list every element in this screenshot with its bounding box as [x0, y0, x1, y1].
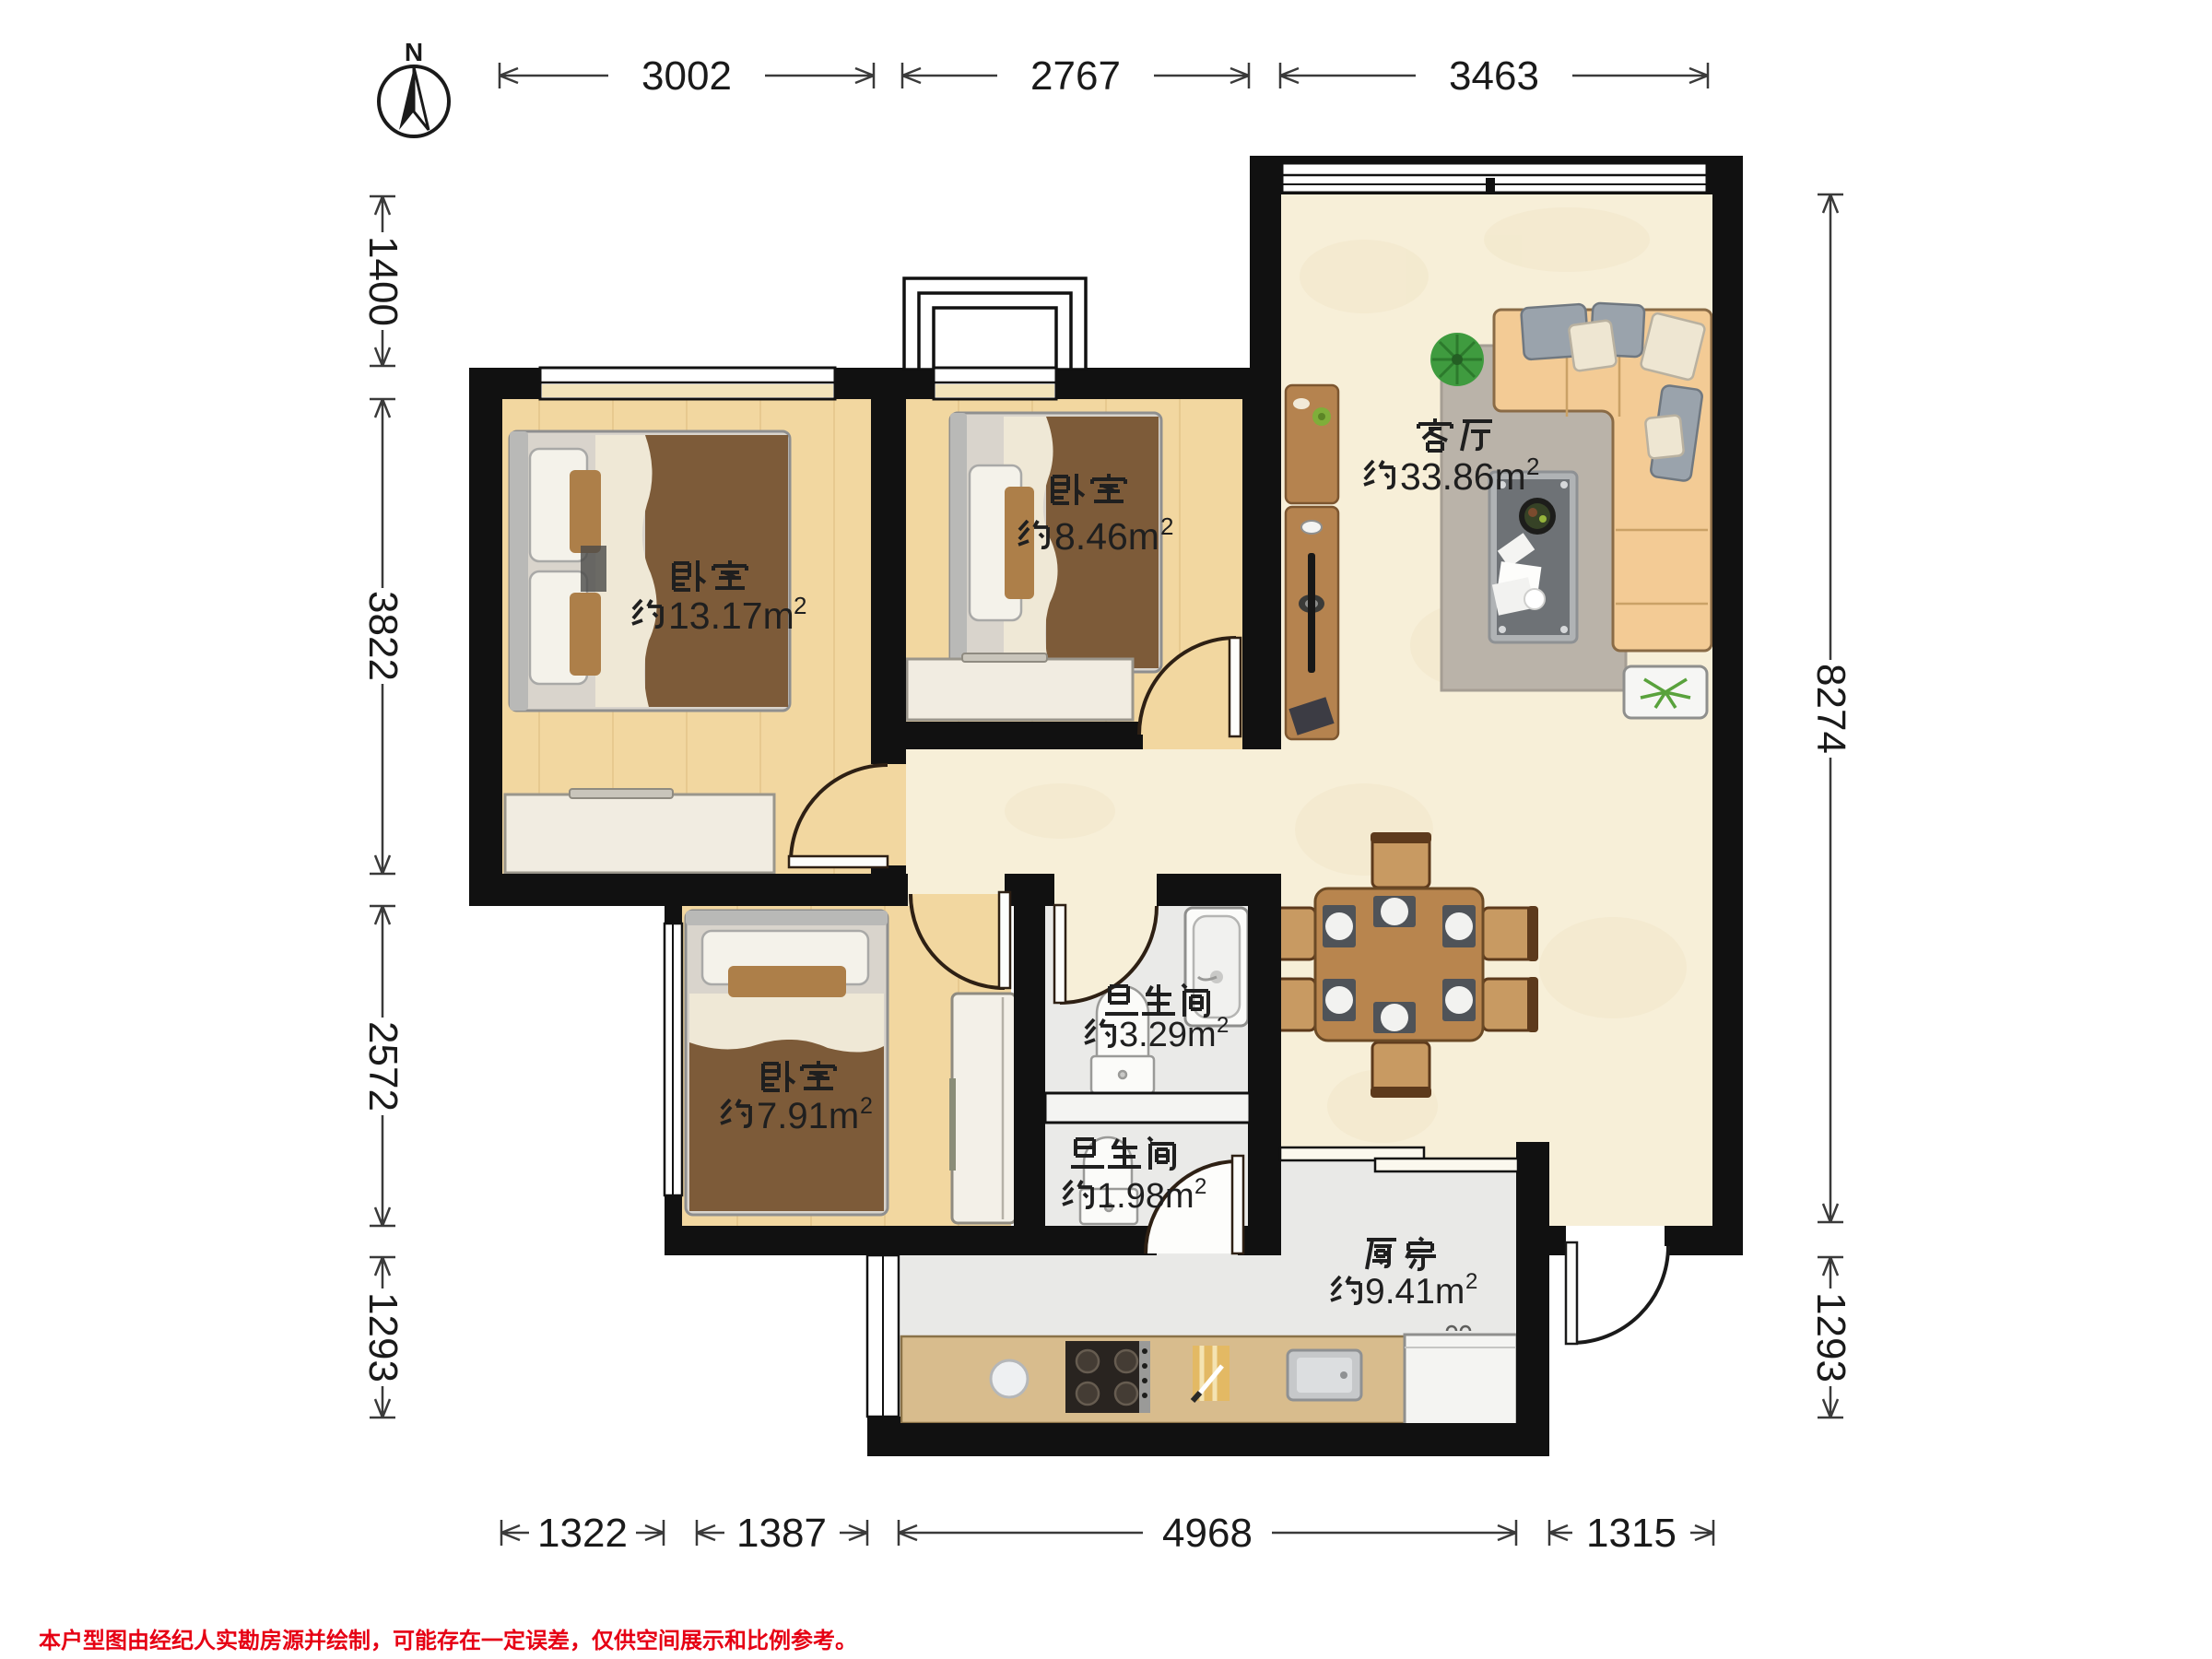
svg-text:33.86m: 33.86m — [1400, 455, 1526, 498]
svg-text:本户型图由经纪人实勘房源并绘制，可能存在一定误差，仅供空间展: 本户型图由经纪人实勘房源并绘制，可能存在一定误差，仅供空间展示和比例参考。 — [39, 1628, 857, 1653]
svg-text:1293: 1293 — [360, 1292, 406, 1382]
svg-text:4968: 4968 — [1162, 1511, 1253, 1556]
svg-text:1322: 1322 — [537, 1511, 628, 1556]
svg-text:2767: 2767 — [1030, 53, 1121, 99]
svg-text:7.91m: 7.91m — [757, 1096, 859, 1136]
svg-text:3822: 3822 — [360, 591, 406, 681]
svg-text:1293: 1293 — [1808, 1292, 1853, 1382]
svg-text:3002: 3002 — [641, 53, 732, 99]
svg-text:1315: 1315 — [1586, 1511, 1677, 1556]
svg-text:2: 2 — [1194, 1174, 1206, 1199]
svg-text:3463: 3463 — [1449, 53, 1539, 99]
svg-text:2: 2 — [1465, 1269, 1477, 1294]
svg-text:2572: 2572 — [360, 1021, 406, 1112]
svg-text:8274: 8274 — [1808, 664, 1853, 754]
svg-text:2: 2 — [860, 1093, 873, 1119]
svg-text:N: N — [405, 38, 423, 66]
svg-text:1.98m: 1.98m — [1097, 1177, 1194, 1216]
svg-text:3.29m: 3.29m — [1119, 1016, 1217, 1054]
svg-text:2: 2 — [1160, 512, 1173, 540]
svg-text:13.17m: 13.17m — [668, 594, 794, 637]
svg-text:1400: 1400 — [360, 236, 406, 326]
svg-text:8.46m: 8.46m — [1054, 515, 1159, 558]
svg-text:2: 2 — [794, 592, 806, 619]
svg-text:2: 2 — [1217, 1013, 1229, 1038]
svg-text:2: 2 — [1526, 453, 1539, 480]
svg-text:1387: 1387 — [736, 1511, 827, 1556]
svg-text:9.41m: 9.41m — [1365, 1272, 1465, 1312]
